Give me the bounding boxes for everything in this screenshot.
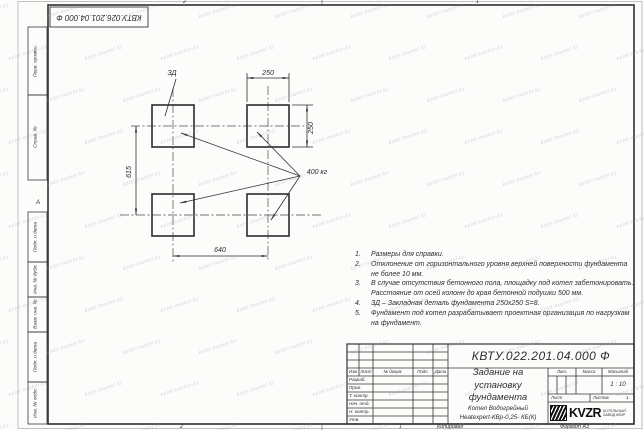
zone-mark-top-left: 2 (183, 0, 186, 5)
margin-label-perv-primen: Перв. примен. (35, 45, 40, 77)
note-text: В случае отсутствия бетонного пола, площ… (371, 279, 635, 299)
manufacturer-logo: KVZR КОТЕЛЬНЫЙ ЗАВОД КВЗР (550, 404, 632, 422)
note-text: Размеры для справки. (371, 250, 635, 260)
note-number: 3. (355, 279, 371, 299)
zone-mark-top-right: 1 (476, 0, 479, 5)
note-item: 4. ЗД – Закладная деталь фундамента 250х… (355, 299, 635, 309)
margin-label-vzam-inv: Взам. инв. № (35, 299, 40, 329)
note-number: 4. (355, 299, 371, 309)
scale-value: 1 : 10 (602, 376, 634, 394)
row-razrab: Разраб. (349, 378, 366, 383)
note-item: 3. В случае отсутствия бетонного пола, п… (355, 279, 635, 299)
load-leaders (180, 132, 300, 220)
titleblock-doc-number: КВТУ.022.201.04.000 Ф (448, 344, 634, 368)
listov-value: 1 (626, 396, 629, 401)
note-number: 2. (355, 260, 371, 280)
top-rotated-docnumber: КВТУ.026.201.04.000 Ф (50, 7, 148, 27)
margin-label-inv-dubl: Инв. № дубл. (35, 264, 40, 294)
dim-label-bottom: 640 (214, 247, 226, 254)
product-line2: Heatexpert-КВр-0,25- КБ(К) (450, 414, 546, 423)
masshtab-label: Масштаб (602, 368, 634, 376)
note-number: 5. (355, 309, 371, 329)
margin-label-podp-data-1: Подп. и дата (35, 222, 40, 252)
titleblock-title: Задание на установку фундамента (450, 368, 546, 404)
note-text: Фундамент под котел разрабатывает проект… (371, 309, 635, 329)
row-t-kontr: Т. контр. (349, 394, 369, 399)
massa-label: Масса (576, 368, 602, 376)
col-header-izm: Изм (347, 368, 359, 376)
row-utv: Утв. (349, 418, 359, 423)
dim-label-right: 250 (308, 122, 315, 135)
margin-label-sprav-no: Справ. № (35, 126, 40, 148)
margin-label-inv-podl: Инв. № подл. (35, 388, 40, 418)
col-header-dokum: № докум. (373, 368, 413, 376)
col-header-podp: Подп. (413, 368, 433, 376)
kopiroval-label: Копировал (437, 425, 463, 430)
zone-row-letter: А (36, 200, 40, 206)
drawing-sheet: 250 250 615 640 ЗД 400 кг (0, 0, 644, 430)
format-label: Формат А3 (560, 425, 589, 430)
margin-label-podp-data-2: Подп. и дата (35, 342, 40, 372)
note-text: Отклонение от горизонтального уровня вер… (371, 260, 635, 280)
dim-label-left: 615 (126, 166, 133, 178)
load-label: 400 кг (307, 169, 328, 176)
embed-detail-leader (165, 79, 176, 116)
note-item: 2. Отклонение от горизонтального уровня … (355, 260, 635, 280)
note-item: 5. Фундамент под котел разрабатывает про… (355, 309, 635, 329)
lit-label: Лит. (548, 368, 576, 376)
kvzr-emblem-icon (550, 405, 567, 421)
logo-sub-line2: ЗАВОД КВЗР (603, 413, 626, 417)
listov-label: Листов (593, 396, 609, 400)
kvzr-logo-text: KVZR (569, 406, 601, 420)
product-line1: Котел Водогрейный (450, 405, 546, 414)
note-item: 1. Размеры для справки. (355, 250, 635, 260)
embed-detail-label: ЗД (168, 70, 177, 77)
list-label: Лист (551, 396, 562, 400)
foundation-plan-drawing: 250 250 615 640 ЗД 400 кг (120, 70, 328, 262)
row-prov: Пров. (349, 386, 361, 391)
row-n-kontr: Н. контр. (349, 410, 370, 415)
zone-mark-bottom-left: 2 (180, 425, 183, 430)
zone-mark-bottom-right: 1 (399, 425, 402, 430)
col-header-data: Дата (433, 368, 448, 376)
row-nach-otd: Нач. отд. (349, 402, 370, 407)
note-number: 1. (355, 250, 371, 260)
col-header-list: Лист (359, 368, 373, 376)
note-text: ЗД – Закладная деталь фундамента 250х250… (371, 299, 635, 309)
kvzr-logo-subtext: КОТЕЛЬНЫЙ ЗАВОД КВЗР (603, 409, 626, 417)
titleblock-product: Котел Водогрейный Heatexpert-КВр-0,25- К… (450, 405, 546, 422)
dim-label-top: 250 (261, 70, 274, 77)
notes-list: 1. Размеры для справки. 2. Отклонение от… (355, 250, 635, 328)
